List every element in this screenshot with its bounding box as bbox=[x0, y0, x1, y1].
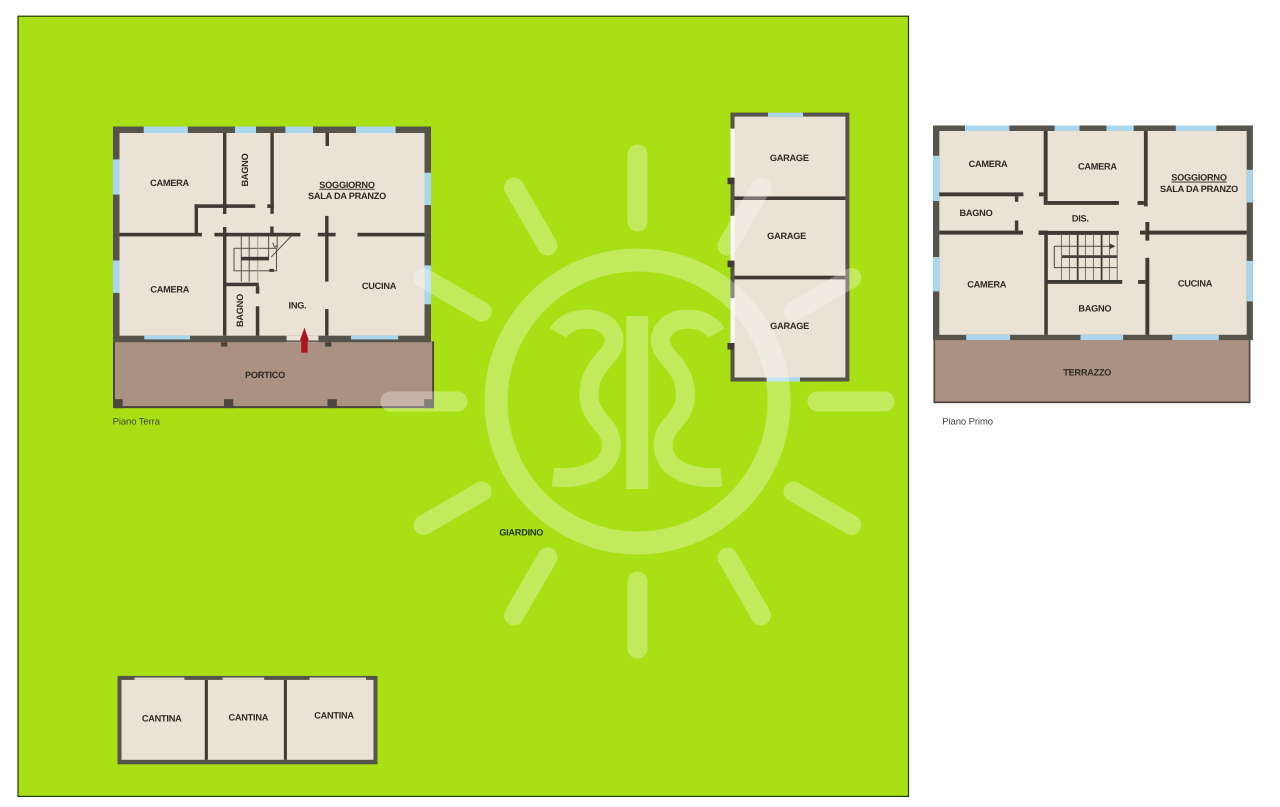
svg-text:ING.: ING. bbox=[289, 301, 307, 311]
svg-text:Piano Primo: Piano Primo bbox=[942, 416, 993, 427]
svg-text:CAMERA: CAMERA bbox=[969, 159, 1008, 169]
svg-text:BAGNO: BAGNO bbox=[1078, 303, 1111, 313]
svg-text:GARAGE: GARAGE bbox=[770, 153, 809, 163]
svg-text:GARAGE: GARAGE bbox=[767, 231, 806, 241]
svg-text:BAGNO: BAGNO bbox=[235, 294, 245, 327]
svg-text:CAMERA: CAMERA bbox=[1078, 161, 1117, 171]
svg-text:CANTINA: CANTINA bbox=[229, 712, 269, 722]
svg-text:SALA DA PRANZO: SALA DA PRANZO bbox=[1160, 184, 1238, 194]
svg-text:CANTINA: CANTINA bbox=[142, 713, 182, 723]
svg-text:Piano Terra: Piano Terra bbox=[113, 416, 161, 427]
svg-text:CAMERA: CAMERA bbox=[150, 178, 189, 188]
svg-text:BAGNO: BAGNO bbox=[960, 208, 993, 218]
svg-text:CUCINA: CUCINA bbox=[1178, 278, 1213, 288]
svg-text:SALA DA PRANZO: SALA DA PRANZO bbox=[308, 191, 386, 201]
svg-text:CUCINA: CUCINA bbox=[362, 281, 397, 291]
svg-text:SOGGIORNO: SOGGIORNO bbox=[1171, 173, 1227, 183]
svg-text:BAGNO: BAGNO bbox=[240, 153, 250, 186]
svg-text:GIARDINO: GIARDINO bbox=[499, 528, 543, 538]
svg-text:CANTINA: CANTINA bbox=[314, 710, 354, 720]
svg-text:PORTICO: PORTICO bbox=[245, 370, 285, 380]
svg-text:TERRAZZO: TERRAZZO bbox=[1063, 367, 1111, 377]
svg-text:GARAGE: GARAGE bbox=[770, 321, 809, 331]
svg-text:CAMERA: CAMERA bbox=[150, 285, 189, 295]
svg-text:SOGGIORNO: SOGGIORNO bbox=[319, 180, 375, 190]
svg-text:DIS.: DIS. bbox=[1072, 213, 1089, 223]
svg-text:CAMERA: CAMERA bbox=[967, 280, 1006, 290]
